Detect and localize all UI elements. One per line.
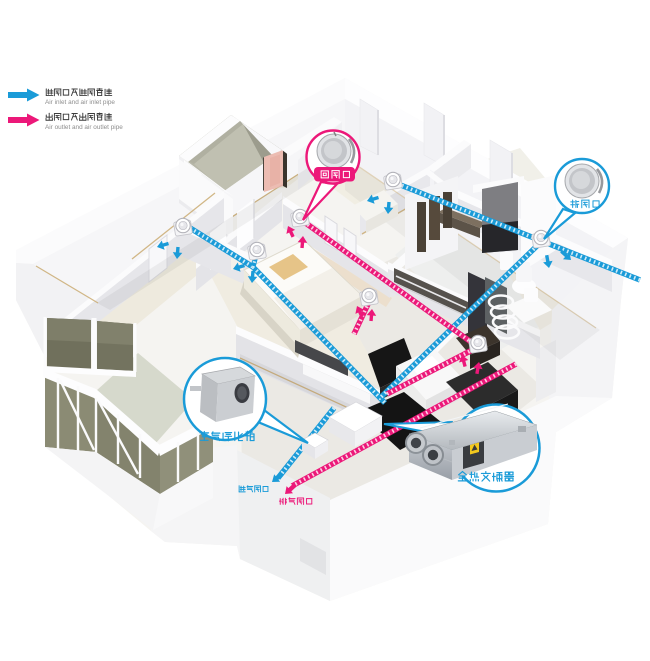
svg-text:Air inlet and air inlet pipe: Air inlet and air inlet pipe [45,99,115,106]
svg-text:Air outlet and air outlet pipe: Air outlet and air outlet pipe [45,124,123,131]
